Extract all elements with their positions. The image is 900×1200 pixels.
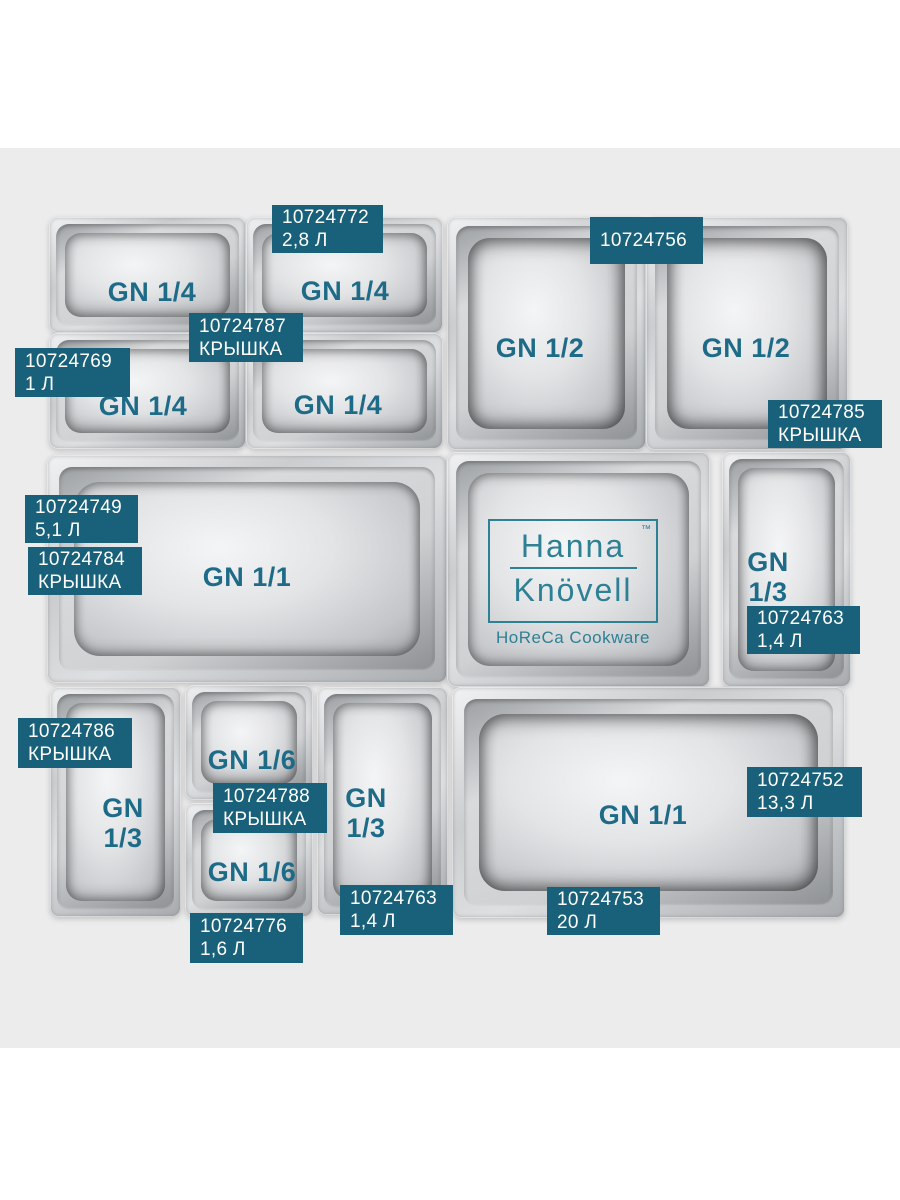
product-badge: 10724784 КРЫШКА (28, 547, 142, 595)
product-badge: 10724776 1,6 Л (190, 913, 303, 963)
product-variant-label: КРЫШКА (38, 571, 136, 594)
product-variant-label: 1,4 Л (757, 630, 854, 653)
gastronorm-product-collage: GN 1/4 GN 1/4 GN 1/4 GN 1/4 GN 1/2 GN 1/… (0, 0, 900, 1200)
gn-size-label: GN 1/6 (208, 745, 297, 775)
logo-divider (510, 567, 637, 569)
gn-size-label: GN 1/3 (747, 547, 789, 607)
product-code: 10724763 (350, 887, 447, 910)
gn-size-label: GN 1/3 (102, 793, 144, 853)
product-badge: 10724786 КРЫШКА (18, 718, 132, 768)
product-variant-label: КРЫШКА (28, 743, 126, 766)
product-code: 10724752 (757, 769, 856, 792)
product-variant-label: 1,4 Л (350, 910, 447, 933)
product-code: 10724784 (38, 548, 136, 571)
gn-size-label: GN 1/1 (599, 800, 688, 830)
product-code: 10724749 (35, 496, 132, 519)
gn-size-label: GN 1/4 (108, 277, 197, 307)
product-badge: 10724752 13,3 Л (747, 767, 862, 817)
product-badge: 10724756 (590, 217, 703, 264)
product-code: 10724756 (600, 229, 697, 252)
trademark-symbol: ™ (641, 524, 651, 535)
product-variant-label: 5,1 Л (35, 519, 132, 542)
gn-size-label: GN 1/2 (702, 333, 791, 363)
product-code: 10724788 (223, 785, 321, 808)
brand-name-line2: Knövell (490, 572, 656, 608)
gn-size-label: GN 1/2 (496, 333, 585, 363)
product-code: 10724753 (557, 888, 654, 911)
product-badge: 10724769 1 Л (15, 348, 130, 397)
product-variant-label: 1,6 Л (200, 938, 297, 961)
product-code: 10724785 (778, 401, 876, 424)
product-badge: 10724788 КРЫШКА (213, 783, 327, 833)
product-code: 10724776 (200, 915, 297, 938)
product-variant-label: КРЫШКА (199, 338, 297, 361)
product-variant-label: КРЫШКА (223, 808, 321, 831)
product-badge: 10724787 КРЫШКА (189, 313, 303, 362)
product-badge: 10724749 5,1 Л (25, 495, 138, 543)
product-badge: 10724753 20 Л (547, 887, 660, 935)
product-code: 10724787 (199, 315, 297, 338)
brand-name-line1: Hanna (490, 528, 656, 564)
product-variant-label: 2,8 Л (282, 229, 377, 252)
product-code: 10724786 (28, 720, 126, 743)
gn-size-label: GN 1/6 (208, 857, 297, 887)
product-variant-label: 20 Л (557, 911, 654, 934)
product-badge: 10724763 1,4 Л (340, 885, 453, 935)
gn-size-label: GN 1/3 (345, 783, 387, 843)
product-badge: 10724785 КРЫШКА (768, 400, 882, 448)
brand-logo: ™ Hanna Knövell (488, 519, 658, 623)
brand-tagline: HoReCa Cookware (488, 628, 658, 648)
gn-size-label: GN 1/1 (203, 562, 292, 592)
product-variant-label: КРЫШКА (778, 424, 876, 447)
product-code: 10724763 (757, 607, 854, 630)
product-code: 10724769 (25, 350, 124, 373)
product-variant-label: 1 Л (25, 373, 124, 396)
product-badge: 10724772 2,8 Л (272, 205, 383, 253)
gn-size-label: GN 1/4 (301, 276, 390, 306)
product-badge: 10724763 1,4 Л (747, 606, 860, 654)
product-variant-label: 13,3 Л (757, 792, 856, 815)
product-code: 10724772 (282, 206, 377, 229)
gn-size-label: GN 1/4 (294, 390, 383, 420)
